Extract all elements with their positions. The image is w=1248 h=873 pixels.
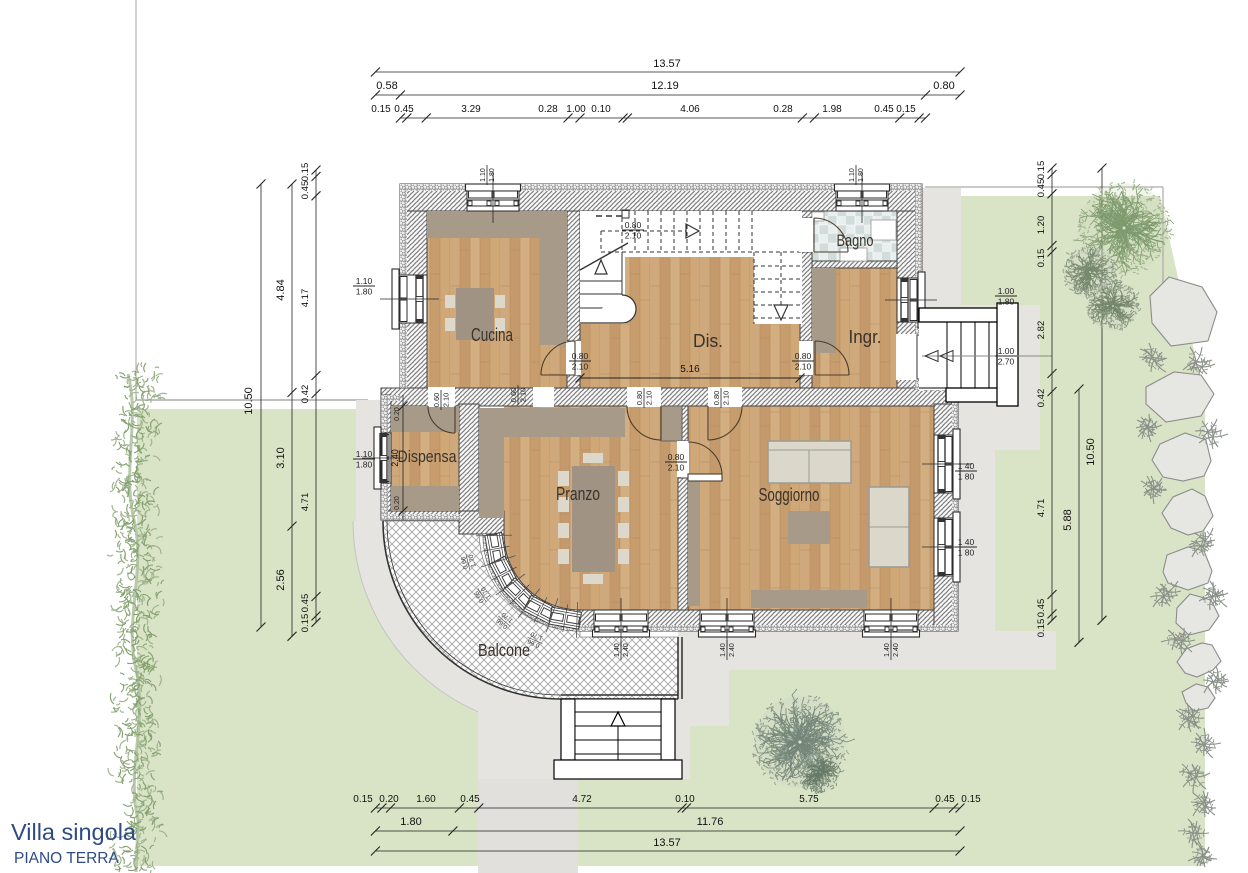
svg-text:4.06: 4.06 <box>680 104 700 115</box>
svg-text:0.15: 0.15 <box>1036 619 1047 638</box>
svg-text:2.82: 2.82 <box>1036 321 1047 340</box>
svg-text:2.40: 2.40 <box>623 643 630 657</box>
svg-text:2.56: 2.56 <box>275 569 287 590</box>
svg-text:5.16: 5.16 <box>680 364 700 375</box>
svg-text:0.10: 0.10 <box>591 104 611 115</box>
svg-text:0.80: 0.80 <box>668 452 685 462</box>
svg-text:1.00: 1.00 <box>998 286 1015 296</box>
svg-text:0.80: 0.80 <box>635 391 644 406</box>
svg-text:1.98: 1.98 <box>822 104 842 115</box>
svg-text:0.20: 0.20 <box>379 794 399 805</box>
svg-text:4.72: 4.72 <box>572 794 592 805</box>
svg-text:4.71: 4.71 <box>300 493 311 512</box>
svg-text:1.10: 1.10 <box>356 449 373 459</box>
svg-text:5.75: 5.75 <box>799 794 819 805</box>
svg-text:4.84: 4.84 <box>275 279 287 300</box>
svg-text:2.40: 2.40 <box>893 643 900 657</box>
svg-text:1.40: 1.40 <box>614 643 621 657</box>
svg-text:0.15: 0.15 <box>353 794 373 805</box>
svg-text:2.70: 2.70 <box>998 357 1015 367</box>
svg-text:1.10: 1.10 <box>849 168 856 182</box>
svg-text:Dis.: Dis. <box>693 330 723 351</box>
svg-text:0.15: 0.15 <box>896 104 916 115</box>
svg-text:0.45: 0.45 <box>394 104 414 115</box>
svg-text:13.57: 13.57 <box>653 58 681 70</box>
svg-text:0.45: 0.45 <box>300 181 311 200</box>
svg-text:0.58: 0.58 <box>376 80 397 92</box>
svg-text:Soggiorno: Soggiorno <box>759 484 820 505</box>
svg-text:0.20: 0.20 <box>394 407 401 421</box>
svg-text:1.40: 1.40 <box>720 643 727 657</box>
svg-text:0.60: 0.60 <box>432 393 441 408</box>
svg-text:10.50: 10.50 <box>243 387 255 415</box>
svg-text:0.15: 0.15 <box>961 794 981 805</box>
svg-text:1.10: 1.10 <box>356 276 373 286</box>
svg-text:Villa singola: Villa singola <box>11 819 137 845</box>
svg-text:0.15: 0.15 <box>1036 249 1047 268</box>
svg-text:1.80: 1.80 <box>858 168 865 182</box>
svg-text:1 40: 1 40 <box>958 537 975 547</box>
svg-text:0.28: 0.28 <box>538 104 558 115</box>
svg-text:10.50: 10.50 <box>1085 438 1097 466</box>
svg-text:0.15: 0.15 <box>300 614 311 633</box>
svg-text:1.80: 1.80 <box>356 287 373 297</box>
svg-text:1.80: 1.80 <box>400 816 421 828</box>
svg-text:2.40: 2.40 <box>390 449 400 467</box>
svg-text:2.10: 2.10 <box>519 388 528 403</box>
svg-text:0.80: 0.80 <box>625 220 642 230</box>
svg-text:0.10: 0.10 <box>675 794 695 805</box>
svg-text:1.00: 1.00 <box>566 104 586 115</box>
svg-text:Balcone: Balcone <box>478 640 530 660</box>
svg-text:3.29: 3.29 <box>461 104 481 115</box>
svg-text:Pranzo: Pranzo <box>556 483 600 504</box>
svg-text:2.40: 2.40 <box>729 643 736 657</box>
svg-text:11.76: 11.76 <box>697 816 724 828</box>
svg-text:1.60: 1.60 <box>416 794 436 805</box>
svg-text:5.88: 5.88 <box>1062 509 1074 530</box>
svg-text:0.45: 0.45 <box>1036 179 1047 198</box>
svg-text:1.80: 1.80 <box>356 460 373 470</box>
svg-text:0.15: 0.15 <box>371 104 391 115</box>
svg-text:2.10: 2.10 <box>645 391 654 406</box>
svg-text:1.10: 1.10 <box>480 168 487 182</box>
svg-text:Bagno: Bagno <box>837 231 874 250</box>
svg-text:0.45: 0.45 <box>460 794 480 805</box>
svg-text:0.20: 0.20 <box>394 496 401 510</box>
svg-text:3.10: 3.10 <box>275 447 287 468</box>
svg-text:Dispensa: Dispensa <box>398 447 457 466</box>
svg-text:2.10: 2.10 <box>795 362 812 372</box>
svg-text:1.40: 1.40 <box>884 643 891 657</box>
svg-text:1.80: 1.80 <box>489 168 496 182</box>
svg-text:Cucina: Cucina <box>471 324 514 345</box>
svg-text:0.42: 0.42 <box>300 385 311 404</box>
svg-text:0.15: 0.15 <box>1036 161 1047 180</box>
svg-text:1 80: 1 80 <box>958 548 975 558</box>
svg-text:4.71: 4.71 <box>1036 499 1047 518</box>
svg-text:2.10: 2.10 <box>722 391 731 406</box>
svg-text:12.19: 12.19 <box>651 80 679 92</box>
svg-text:13.57: 13.57 <box>653 837 681 849</box>
svg-text:2.10: 2.10 <box>442 393 451 408</box>
svg-text:0.45: 0.45 <box>1036 599 1047 618</box>
svg-text:0.60: 0.60 <box>509 388 518 403</box>
svg-text:1.20: 1.20 <box>1036 216 1047 235</box>
svg-text:0.28: 0.28 <box>773 104 793 115</box>
svg-text:2.10: 2.10 <box>572 362 589 372</box>
svg-text:0.42: 0.42 <box>1036 389 1047 408</box>
svg-text:1.00: 1.00 <box>998 346 1015 356</box>
svg-text:0.80: 0.80 <box>933 80 954 92</box>
svg-text:PIANO TERRA: PIANO TERRA <box>14 850 119 867</box>
svg-text:0.45: 0.45 <box>935 794 955 805</box>
svg-text:0.15: 0.15 <box>300 163 311 182</box>
svg-text:0.80: 0.80 <box>572 351 589 361</box>
svg-text:1 80: 1 80 <box>958 472 975 482</box>
svg-text:1 40: 1 40 <box>958 461 975 471</box>
svg-text:1.80: 1.80 <box>998 297 1015 307</box>
svg-text:0.80: 0.80 <box>712 391 721 406</box>
svg-text:2.10: 2.10 <box>668 463 685 473</box>
svg-text:4.17: 4.17 <box>300 289 311 308</box>
svg-text:0.80: 0.80 <box>795 351 812 361</box>
svg-text:0.45: 0.45 <box>874 104 894 115</box>
svg-text:2.10: 2.10 <box>625 231 642 241</box>
svg-text:Ingr.: Ingr. <box>849 326 882 347</box>
svg-text:0.45: 0.45 <box>300 594 311 613</box>
